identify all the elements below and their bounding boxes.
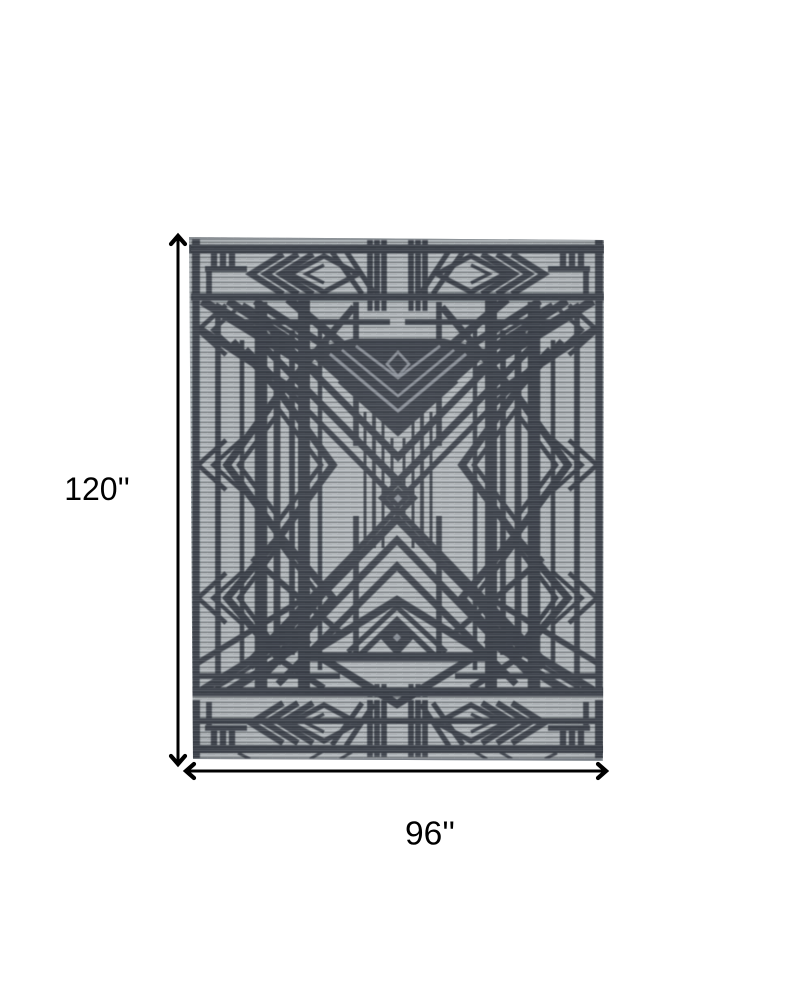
svg-text:120'': 120''	[64, 471, 130, 507]
svg-text:96'': 96''	[405, 816, 455, 853]
